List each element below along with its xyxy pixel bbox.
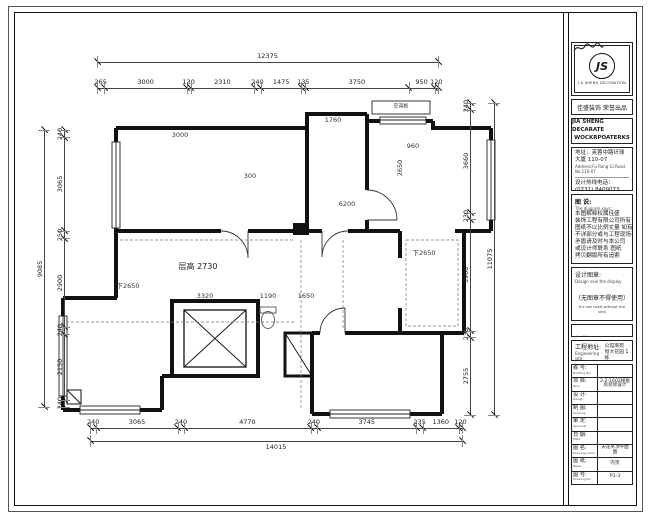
interior-dim-label: 6200 — [339, 201, 356, 208]
dim-segment-label: 2150 — [57, 359, 64, 376]
dim-total-label: 9085 — [37, 260, 44, 277]
flue-box — [67, 390, 81, 404]
address-en: Address:Fu Rong Gi Road No.110-07 — [575, 164, 629, 174]
info-table-value: 天花吊顶平面图 — [598, 445, 632, 457]
dim-extension — [58, 334, 70, 335]
site-label-en: Engineering site — [575, 351, 603, 361]
info-table-row: 设 计:Design — [572, 392, 632, 405]
dim-segment-label: 3660 — [463, 153, 470, 170]
dim-segment-label: 3065 — [129, 419, 146, 426]
ac-panel-label: 空调板 — [393, 105, 408, 110]
walls — [63, 114, 491, 414]
info-table-value: P1-3 — [598, 472, 632, 484]
dim-segment-label: 2755 — [463, 368, 470, 385]
stamp-warning-en: It's not used without the seal — [575, 304, 629, 314]
dim-extension — [96, 422, 97, 434]
dim-extension — [409, 82, 410, 94]
dim-segment-label: 3745 — [358, 419, 375, 426]
duct-shaft — [285, 333, 312, 376]
dim-extension — [464, 219, 476, 220]
dim-line — [494, 103, 495, 415]
brand-name-en: JIA SHENG DECARATE WOCKRPOATERKS — [571, 118, 633, 144]
dim-extension — [464, 337, 476, 338]
drop-left-label: 下2650 — [116, 283, 139, 290]
dim-extension — [97, 56, 98, 68]
dim-segment-label: 3960 — [463, 267, 470, 284]
dim-segment-label: 2310 — [214, 79, 231, 86]
notes-line: 本图解释权属佳盛 — [575, 211, 629, 218]
dim-extension — [488, 103, 500, 104]
dim-segment-label: 3065 — [57, 176, 64, 193]
dim-extension — [58, 130, 70, 131]
remark-row: 备 注: Note: — [571, 324, 633, 337]
windows — [59, 117, 495, 418]
project-site-row: 工程地址: Engineering site 公馆南苑 恒大花园 1栋 — [571, 340, 633, 361]
dim-line — [90, 441, 462, 442]
info-table-row: 图 号:Drawing No.P1-3 — [572, 472, 632, 484]
elevator-shaft — [172, 301, 258, 376]
info-table-value — [598, 392, 632, 404]
dim-line — [470, 103, 471, 415]
interior-dim-label: 2650 — [397, 160, 404, 177]
dim-line — [97, 62, 438, 63]
info-table-row: 审 定:Approval — [572, 418, 632, 431]
info-table-row: 日 期:Date — [572, 432, 632, 445]
brand-name-cn: 佳盛装饰 荣誉出品 — [571, 99, 633, 115]
stamp-warning-cn: （无图章不得使用） — [575, 293, 629, 302]
dim-line — [44, 130, 45, 407]
interior-dim-label: 3320 — [197, 293, 214, 300]
info-table-row: 图 名:Drawing name天花吊顶平面图 — [572, 445, 632, 458]
dim-extension — [317, 422, 318, 434]
drop-right-label: 下2650 — [412, 250, 435, 257]
dim-segment-label: 4770 — [239, 419, 256, 426]
toilet-icon — [260, 307, 276, 329]
info-table-row: 图 纸:Paper内页 — [572, 458, 632, 471]
dim-extension — [191, 82, 192, 94]
interior-dim-label: 1760 — [325, 117, 342, 124]
site-label-cn: 工程地址: — [575, 342, 603, 351]
floor-plan: 2653000130231024014751353750950120123752… — [0, 0, 650, 520]
dim-extension — [97, 82, 98, 94]
interior-dim-label: 3000 — [172, 132, 189, 139]
dim-extension — [462, 422, 463, 434]
dim-segment-label: 3750 — [349, 79, 366, 86]
interior-dim-label: 300 — [244, 173, 256, 180]
phone-cn: 设计热线电话： (0731) 8409073 — [575, 180, 629, 191]
logo-js-monogram: JS — [589, 53, 615, 79]
dim-extension — [58, 238, 70, 239]
dim-extension — [58, 407, 70, 408]
dim-segment-label: 2900 — [57, 274, 64, 291]
dim-line — [64, 130, 65, 407]
stamp-label-cn: 设计图章: — [575, 270, 629, 279]
address-cn: 地址：芙蓉中路环球大厦 110-07 — [575, 150, 629, 164]
info-table-row: 制 图:Drawing — [572, 405, 632, 418]
dim-segment-label: 3000 — [137, 79, 154, 86]
info-table-value — [598, 432, 632, 444]
dim-extension — [90, 422, 91, 434]
remark-label-cn: 备 注: — [575, 336, 591, 337]
info-table-value — [598, 365, 632, 377]
dim-segment-label: 1475 — [273, 79, 290, 86]
interior-dim-label: 1650 — [298, 293, 315, 300]
dim-extension — [438, 56, 439, 68]
interior-dim-label: 1190 — [260, 293, 277, 300]
interior-dim-label: 960 — [407, 143, 419, 150]
dim-extension — [58, 137, 70, 138]
info-table-value: 内页 — [598, 458, 632, 470]
dim-extension — [464, 103, 476, 104]
structural-column — [293, 223, 309, 235]
dim-extension — [38, 407, 50, 408]
diagram-notes: 图 说: The diagram says: 本图解释权属佳盛装饰工程有限公司所… — [571, 194, 633, 264]
notes-title-cn: 图 说: — [575, 197, 629, 206]
contact-info: 地址：芙蓉中路环球大厦 110-07 Address:Fu Rong Gi Ro… — [571, 147, 633, 191]
info-table-value — [598, 418, 632, 430]
design-stamp-area: 设计图章: Design seal the display （无图章不得使用） … — [571, 267, 633, 321]
logo-caption: J A SHENG DECORATION — [578, 81, 626, 85]
info-table-row: 栋 号:Building No. — [572, 365, 632, 378]
site-value: 公馆南苑 恒大花园 1栋 — [605, 344, 629, 359]
stamp-label-en: Design seal the display — [575, 279, 629, 284]
title-block: JS J A SHENG DECORATION 佳盛装饰 荣誉出品 JIA SH… — [571, 42, 633, 485]
notes-lines: 本图解释权属佳盛装饰工程有限公司所有图纸不以比例丈量 如有不详部分或与工程现场有… — [575, 211, 629, 260]
dim-extension — [184, 422, 185, 434]
dim-segment-label: 1360 — [432, 419, 449, 426]
dim-extension — [423, 422, 424, 434]
info-table-value — [598, 405, 632, 417]
dim-extension — [464, 415, 476, 416]
dim-total-label: 14015 — [266, 444, 287, 451]
dim-line — [97, 88, 438, 89]
dim-extension — [464, 110, 476, 111]
dim-extension — [462, 435, 463, 447]
ceiling-label: 层高 2730 — [179, 263, 218, 271]
dim-extension — [90, 435, 91, 447]
dim-line — [90, 428, 462, 429]
info-table-row: 项 目:Item2-2-1602样板房装修设计 — [572, 378, 632, 391]
dim-extension — [38, 130, 50, 131]
dim-extension — [305, 82, 306, 94]
dim-total-label: 12375 — [257, 53, 278, 60]
dim-extension — [261, 82, 262, 94]
notes-line: 拷贝翻版所有追索 — [575, 253, 629, 260]
dim-extension — [104, 82, 105, 94]
drawing-info-table: 栋 号:Building No.项 目:Item2-2-1602样板房装修设计设… — [571, 364, 633, 485]
dim-total-label: 11075 — [487, 249, 494, 270]
dim-extension — [438, 82, 439, 94]
dim-extension — [488, 415, 500, 416]
dim-segment-label: 950 — [415, 79, 427, 86]
info-table-value: 2-2-1602样板房装修设计 — [598, 378, 632, 390]
